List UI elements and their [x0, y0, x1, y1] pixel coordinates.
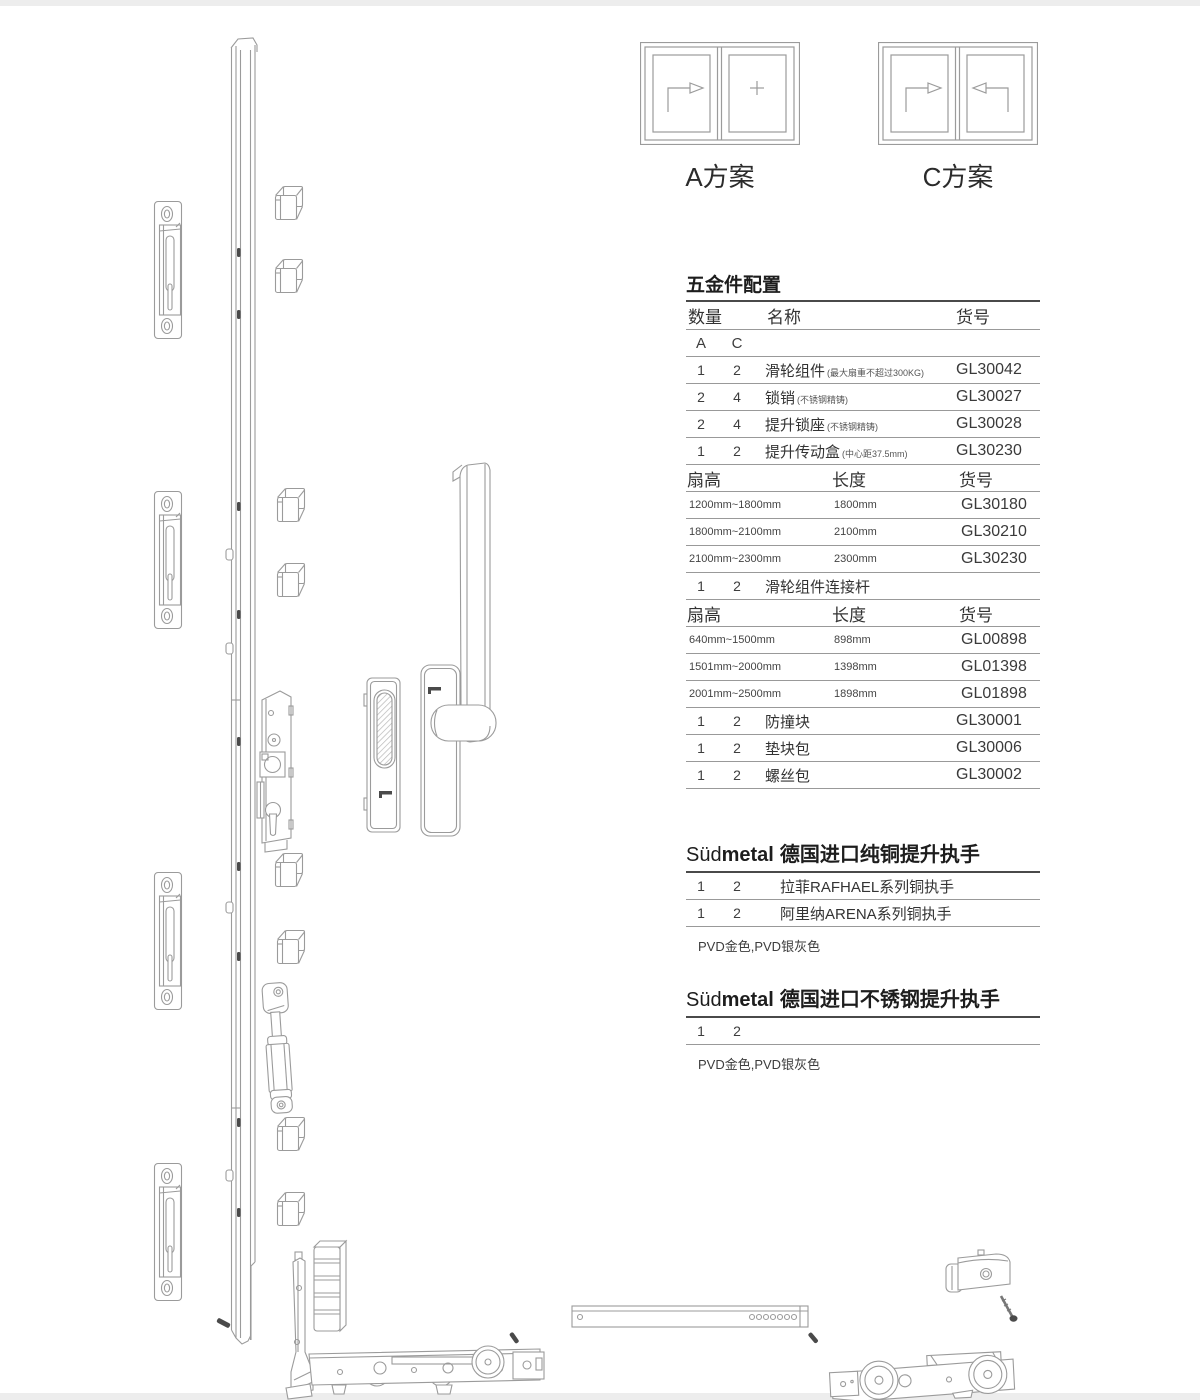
part-code: GL01398	[961, 658, 1040, 676]
part-code: GL00898	[961, 631, 1040, 649]
part-code: GL01898	[961, 685, 1040, 703]
header-qty: 数量	[686, 303, 760, 328]
window-plan-c-label: C方案	[878, 157, 1038, 194]
hardware-table-title: 五金件配置	[686, 268, 1040, 302]
part-code: GL30210	[961, 523, 1040, 541]
qty-a: 2	[686, 389, 716, 405]
part-code: GL30027	[956, 388, 1040, 406]
qty-c: 4	[716, 416, 758, 432]
part-name: 滑轮组件连接杆	[758, 576, 956, 597]
hardware-table-row: 1200mm~1800mm1800mmGL30180	[686, 492, 1040, 519]
lift-lock-keeper-plate	[155, 873, 182, 1010]
buffer-block-drawing	[314, 1241, 346, 1331]
length: 长度	[832, 466, 959, 491]
part-code: GL30002	[956, 766, 1040, 784]
spacer-block-clip	[278, 1118, 305, 1151]
part-name: 提升传动盒(中心距37.5mm)	[758, 441, 956, 462]
qty-c: 2	[716, 905, 758, 921]
steel-handle-section: Südmetal德国进口不锈钢提升执手 1 2 PVD金色,PVD银灰色	[686, 981, 1040, 1073]
lift-lock-keeper-plate	[155, 202, 182, 339]
fan-height: 扇高	[686, 601, 832, 626]
qty-a: 1	[686, 1023, 716, 1039]
connecting-bar-drawing	[572, 1306, 808, 1327]
qty-c: 2	[716, 362, 758, 378]
fan-height: 2001mm~2500mm	[686, 688, 834, 700]
length: 长度	[832, 601, 959, 626]
finish-note: PVD金色,PVD银灰色	[686, 927, 1040, 955]
qty-a: 1	[686, 713, 716, 729]
fan-height: 640mm~1500mm	[686, 634, 834, 646]
fan-height: 1200mm~1800mm	[686, 499, 834, 511]
spacer-block-clip	[276, 187, 303, 220]
hardware-table-row: 1501mm~2000mm1398mmGL01398	[686, 654, 1040, 681]
hardware-table-row: 12垫块包GL30006	[686, 735, 1040, 762]
lift-gearbox-drawing	[257, 691, 293, 852]
qty-a: 1	[686, 905, 716, 921]
spacer-block-clip	[276, 260, 303, 293]
qty-c: 2	[716, 740, 758, 756]
hardware-table-rows: AC12滑轮组件(最大扇重不超过300KG)GL3004224锁销(不锈钢精铸)…	[686, 330, 1040, 789]
hardware-table-row: 640mm~1500mm898mmGL00898	[686, 627, 1040, 654]
length: 2300mm	[834, 553, 961, 565]
qty-c: 2	[716, 878, 758, 894]
roller-carriage-left-drawing	[309, 1346, 544, 1394]
header-name: 名称	[760, 303, 956, 328]
hardware-table-row: AC	[686, 330, 1040, 357]
part-note: (不锈钢精铸)	[797, 395, 848, 405]
flush-pull-handle-drawing	[364, 678, 400, 832]
part-code: GL30006	[956, 739, 1040, 757]
spacer-block-clip	[278, 564, 305, 597]
window-plan-a: A方案	[640, 42, 800, 194]
length: 2100mm	[834, 526, 961, 538]
brand-name: Südmetal	[686, 989, 774, 1011]
steel-section-title: Südmetal德国进口不锈钢提升执手	[686, 981, 1040, 1018]
qty-col-c-label: C	[716, 335, 758, 352]
part-name: 提升锁座(不锈钢精铸)	[758, 414, 956, 435]
part-code: GL30042	[956, 361, 1040, 379]
qty-a: 1	[686, 578, 716, 594]
qty-a: 1	[686, 767, 716, 783]
part-name: 防撞块	[758, 711, 956, 732]
fan-height: 扇高	[686, 466, 832, 491]
fan-height: 1501mm~2000mm	[686, 661, 834, 673]
spacer-block-clip	[278, 489, 305, 522]
qty-a: 2	[686, 416, 716, 432]
qty-a: 1	[686, 362, 716, 378]
brass-section-title: Südmetal德国进口纯铜提升执手	[686, 836, 1040, 873]
qty-c: 2	[716, 713, 758, 729]
part-name: 锁销(不锈钢精铸)	[758, 387, 956, 408]
qty-a: 1	[686, 443, 716, 459]
qty-c: 2	[716, 443, 758, 459]
hardware-table-row: 12防撞块GL30001	[686, 708, 1040, 735]
qty-a: 1	[686, 740, 716, 756]
length: 1898mm	[834, 688, 961, 700]
part-name: 螺丝包	[758, 765, 956, 786]
part-note: (中心距37.5mm)	[842, 449, 908, 459]
length: 1800mm	[834, 499, 961, 511]
window-plan-c-diagram	[878, 42, 1038, 145]
part-code: GL30230	[956, 442, 1040, 460]
part-code: GL30028	[956, 415, 1040, 433]
window-plan-a-diagram	[640, 42, 800, 145]
window-plan-a-label: A方案	[640, 157, 800, 194]
hardware-table-row: 扇高长度货号	[686, 600, 1040, 627]
header-code: 货号	[956, 303, 1040, 328]
hardware-table-row: 1800mm~2100mm2100mmGL30210	[686, 519, 1040, 546]
spacer-block-clip	[278, 1193, 305, 1226]
part-note: (最大扇重不超过300KG)	[827, 368, 924, 378]
screw-icon	[1001, 1296, 1018, 1322]
screw-icon	[808, 1332, 819, 1344]
spacer-block-clip	[276, 854, 303, 887]
hardware-table-row: 2001mm~2500mm1898mmGL01898	[686, 681, 1040, 708]
part-code: GL30001	[956, 712, 1040, 730]
part-name: 滑轮组件(最大扇重不超过300KG)	[758, 360, 956, 381]
part-code: GL30230	[961, 550, 1040, 568]
fan-height: 2100mm~2300mm	[686, 553, 834, 565]
roller-carriage-right-drawing	[829, 1351, 1015, 1400]
lift-lever-handle-drawing	[421, 463, 496, 836]
lift-lock-keeper-plate	[155, 1164, 182, 1301]
anti-collision-block-drawing	[946, 1250, 1010, 1292]
qty-c: 2	[716, 578, 758, 594]
hardware-table-row: 12螺丝包GL30002	[686, 762, 1040, 789]
hardware-table-header: 数量 名称 货号	[686, 302, 1040, 330]
finish-note: PVD金色,PVD银灰色	[686, 1045, 1040, 1073]
part-name: 垫块包	[758, 738, 956, 759]
part-code: GL30180	[961, 496, 1040, 514]
hardware-table-row: 12滑轮组件连接杆	[686, 573, 1040, 600]
brand-name: Südmetal	[686, 844, 774, 866]
screw-icon	[216, 1318, 231, 1329]
catalog-page: A方案 C方案 五金件配置	[0, 0, 1200, 1400]
qty-a: 1	[686, 878, 716, 894]
brass-row: 1 2 拉菲RAFHAEL系列铜执手	[686, 873, 1040, 900]
hardware-table-row: 24提升锁座(不锈钢精铸)GL30028	[686, 411, 1040, 438]
fan-height: 1800mm~2100mm	[686, 526, 834, 538]
hardware-table-row: 12滑轮组件(最大扇重不超过300KG)GL30042	[686, 357, 1040, 384]
part-code: 货号	[959, 601, 1040, 626]
lock-pin-cylinder-drawing	[262, 982, 296, 1113]
length: 898mm	[834, 634, 961, 646]
handle-name: 拉菲RAFHAEL系列铜执手	[758, 876, 1040, 897]
qty-c: 4	[716, 389, 758, 405]
hardware-table-row: 24锁销(不锈钢精铸)GL30027	[686, 384, 1040, 411]
hardware-table-row: 扇高长度货号	[686, 465, 1040, 492]
brass-row: 1 2 阿里纳ARENA系列铜执手	[686, 900, 1040, 927]
spacer-block-clip	[278, 931, 305, 964]
qty-c: 2	[716, 767, 758, 783]
part-code: 货号	[959, 466, 1040, 491]
length: 1398mm	[834, 661, 961, 673]
part-note: (不锈钢精铸)	[827, 422, 878, 432]
steel-row: 1 2	[686, 1018, 1040, 1045]
hardware-config-table: 五金件配置 数量 名称 货号 AC12滑轮组件(最大扇重不超过300KG)GL3…	[686, 268, 1040, 789]
hardware-table-row: 12提升传动盒(中心距37.5mm)GL30230	[686, 438, 1040, 465]
handle-name: 阿里纳ARENA系列铜执手	[758, 903, 1040, 924]
qty-c: 2	[716, 1023, 758, 1039]
screw-icon	[509, 1332, 520, 1344]
qty-col-a-label: A	[686, 335, 716, 352]
brass-handle-section: Südmetal德国进口纯铜提升执手 1 2 拉菲RAFHAEL系列铜执手 1 …	[686, 836, 1040, 955]
lift-lock-keeper-plate	[155, 492, 182, 629]
window-plan-c: C方案	[878, 42, 1038, 194]
hardware-table-row: 2100mm~2300mm2300mmGL30230	[686, 546, 1040, 573]
lock-rail-drawing	[226, 38, 257, 1344]
